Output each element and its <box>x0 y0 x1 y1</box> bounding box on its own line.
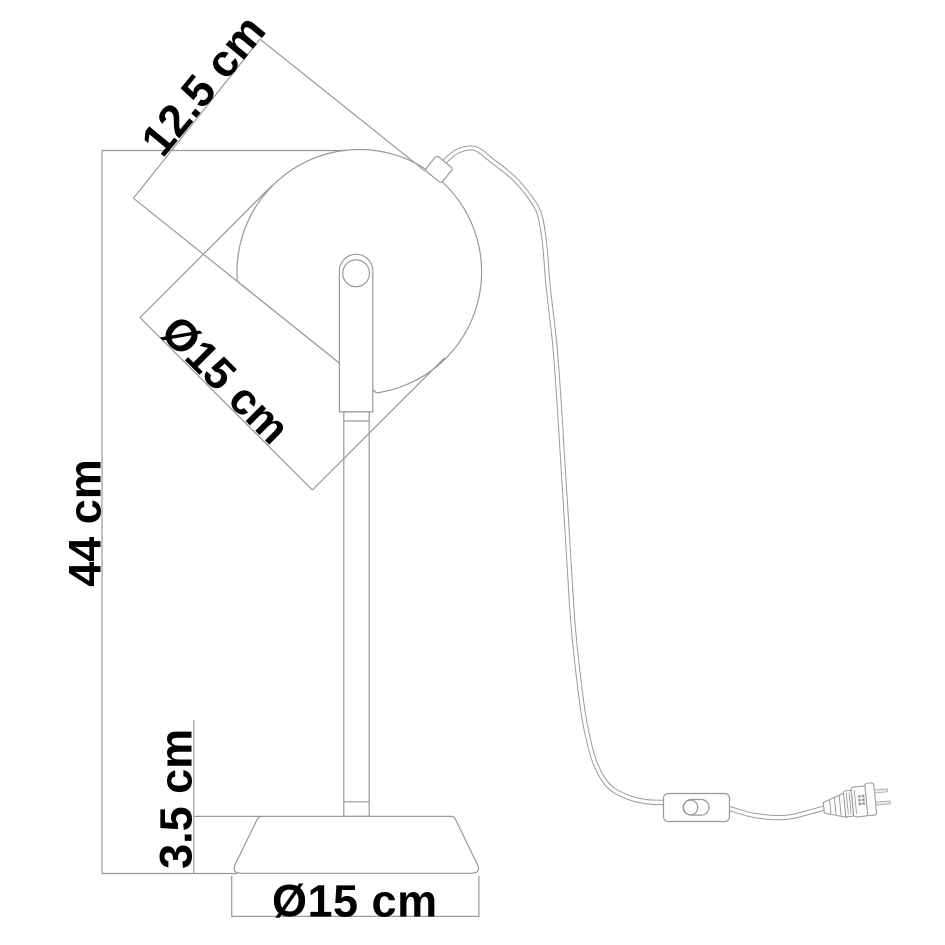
svg-text:Ø15 cm: Ø15 cm <box>152 307 299 454</box>
svg-text:Ø15 cm: Ø15 cm <box>272 876 438 927</box>
svg-text:12.5 cm: 12.5 cm <box>131 5 275 165</box>
svg-text:44 cm: 44 cm <box>59 459 110 587</box>
svg-text:3.5 cm: 3.5 cm <box>150 729 201 869</box>
